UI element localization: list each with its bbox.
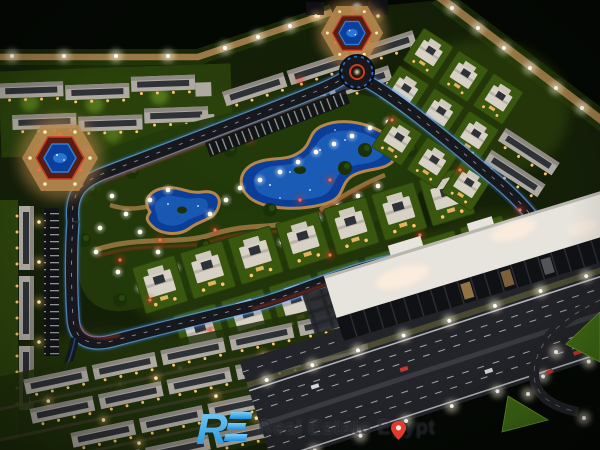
compound-masterplan	[0, 0, 600, 450]
aerial-night-render: R Real Estate Egypt	[0, 0, 600, 450]
location-pin-icon	[391, 421, 406, 440]
vignette	[0, 0, 600, 450]
